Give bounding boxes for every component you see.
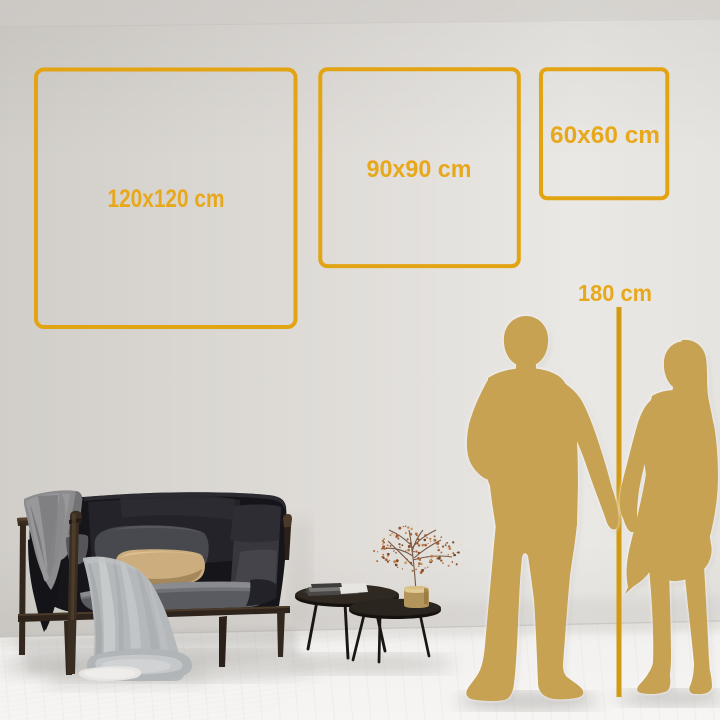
svg-text:180 cm: 180 cm <box>578 280 652 306</box>
svg-text:120x120 cm: 120x120 cm <box>108 185 225 213</box>
svg-text:60x60 cm: 60x60 cm <box>550 122 660 149</box>
svg-text:90x90 cm: 90x90 cm <box>367 156 472 183</box>
